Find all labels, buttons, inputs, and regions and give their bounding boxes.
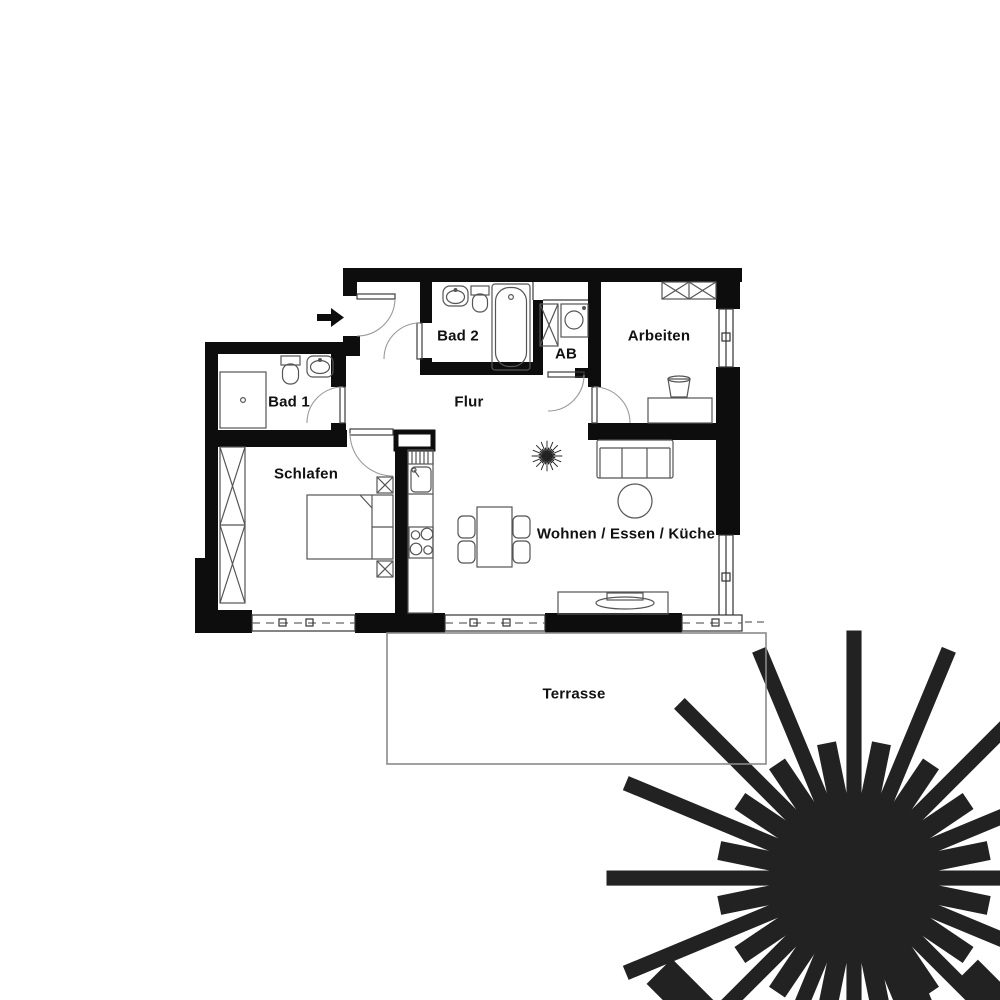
bad1-top-wall — [205, 342, 360, 354]
desk-icon — [648, 398, 712, 423]
dishwasher-hatch — [408, 450, 433, 464]
nightstand-icon — [377, 477, 393, 493]
bathtub-icon — [492, 284, 530, 370]
chair-icon — [458, 541, 475, 563]
kitchen-fixtures — [408, 450, 433, 613]
coffee-table-icon — [618, 484, 652, 518]
room-label-bad2: Bad 2 — [437, 328, 479, 345]
tv-icon — [596, 597, 654, 609]
wardrobe-icon — [220, 447, 245, 603]
bad1-bottom-wall — [205, 430, 347, 447]
sideboard-icon — [558, 592, 668, 614]
installation-shaft — [396, 432, 433, 449]
room-label-schlafen: Schlafen — [274, 466, 338, 483]
bottom-wall-a — [355, 613, 445, 633]
dining-window — [445, 615, 545, 631]
walls — [195, 268, 742, 633]
top-wall — [343, 268, 742, 282]
bottom-wall-b — [545, 613, 682, 633]
bad2-bottom-wall — [420, 362, 535, 375]
washing-machine-icon — [561, 304, 588, 337]
stove-icon — [409, 527, 433, 558]
room-label-terrasse: Terrasse — [542, 686, 605, 703]
kitchen-counter — [408, 450, 433, 613]
sofa-icon — [597, 440, 673, 478]
doors — [307, 294, 630, 476]
room-label-ab: AB — [555, 346, 577, 363]
bad1-door — [307, 387, 345, 423]
arbeiten-bottom-wall — [588, 423, 740, 440]
floor-plan-drawing — [0, 0, 1000, 1000]
bad1-right-wall-lower — [331, 423, 346, 435]
sink-icon — [443, 286, 468, 306]
sink-icon — [307, 356, 333, 377]
schlafen-window — [252, 615, 355, 631]
ab-right-wall — [588, 282, 601, 387]
room-label-wohnen: Wohnen / Essen / Küche — [537, 526, 715, 543]
entrance-door — [357, 294, 395, 336]
toilet-icon — [281, 356, 300, 384]
ab-left-wall — [533, 300, 543, 375]
dining-fixtures — [458, 507, 530, 567]
chair-icon — [458, 516, 475, 538]
nightstand-icon — [377, 561, 393, 577]
right-wall-mid — [716, 367, 740, 535]
wohnen-right-window — [719, 535, 766, 622]
toilet-icon — [471, 286, 489, 312]
bad2-left-wall-upper — [420, 282, 432, 323]
arbeiten-fixtures — [648, 282, 716, 423]
room-label-bad1: Bad 1 — [268, 394, 310, 411]
wardrobe-icon — [662, 282, 716, 299]
schlafen-door — [350, 429, 393, 476]
entrance-wall-above-door — [343, 282, 357, 296]
arbeiten-door — [592, 387, 630, 423]
left-wall — [205, 342, 218, 613]
room-label-arbeiten: Arbeiten — [628, 328, 690, 345]
kitchen-schlafen-wall — [395, 447, 408, 613]
bad2-door — [384, 323, 422, 359]
bad1-fixtures — [220, 356, 333, 428]
floor-plan-canvas: Bad 2 AB Arbeiten Bad 1 Flur Schlafen Wo… — [0, 0, 1000, 1000]
wohnen-bottom-window — [682, 615, 742, 631]
plant-icon — [532, 441, 563, 472]
right-wall-upper — [716, 282, 740, 309]
shower-icon — [220, 372, 266, 428]
arbeiten-window — [719, 309, 733, 367]
dining-table — [477, 507, 512, 567]
plant-icon — [607, 631, 1000, 1000]
entrance-arrow-icon — [317, 308, 344, 327]
bottom-left-corner-wall — [195, 610, 252, 633]
stool-icon — [668, 376, 690, 397]
room-label-flur: Flur — [454, 394, 483, 411]
chair-icon — [513, 541, 530, 563]
kitchen-sink-icon — [408, 467, 433, 494]
chair-icon — [513, 516, 530, 538]
thin-partition-lines — [533, 282, 588, 300]
ab-fixtures — [540, 304, 588, 346]
double-bed-icon — [307, 495, 393, 559]
